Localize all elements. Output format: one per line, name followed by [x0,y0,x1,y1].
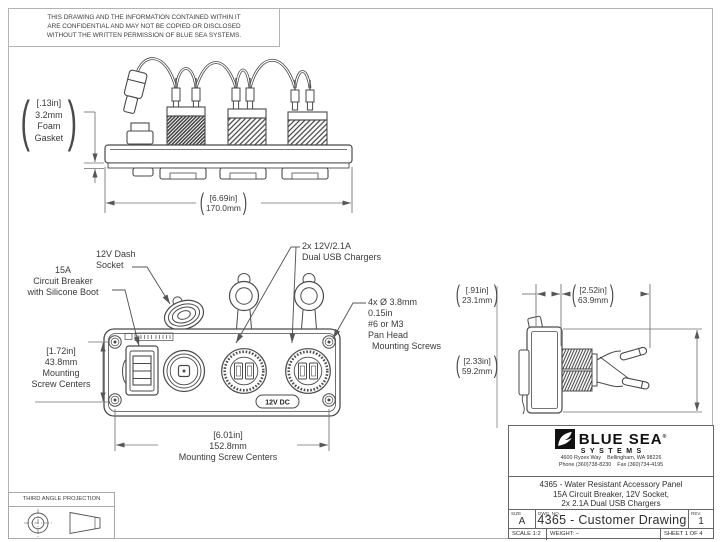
dim-screw-centers-horizontal: [6.01in] 152.8mm Mounting Screw Centers [158,430,298,463]
screw-bottom-left [109,394,121,406]
drawing-description: 4365 - Water Resistant Accessory Panel 1… [509,476,713,509]
size-value: A [509,516,535,527]
projection-cone-icon [67,511,107,535]
usb-cap-left [230,274,259,330]
side-view [519,316,650,414]
drawing-sheet: THIS DRAWING AND THE INFORMATION CONTAIN… [0,0,720,542]
callout-foam-gasket: ( [.13in] 3.2mm Foam Gasket ) [16,93,82,149]
panel-flange-profile [527,327,562,413]
threaded-body [562,349,597,391]
brand-subname: SYSTEMS [509,448,713,455]
weight-cell: WEIGHT: – [547,529,661,540]
usb-charger-right [286,349,331,394]
dash-socket [164,351,205,392]
component-bodies [167,107,327,145]
plug-connector [120,70,153,144]
blue-sea-logo [555,429,575,449]
title-block: BLUE SEA® SYSTEMS 4600 Ryzex Way Belling… [508,425,714,539]
projection-label: THIRD ANGLE PROJECTION [9,493,114,507]
usb-charger-left [222,349,267,394]
sheet-cell: SHEET 1 OF 4 [661,529,713,540]
revision-cell: REV. 1 [689,510,713,528]
screw-bottom-right [323,394,335,406]
drawing-number-value: 4365 - Customer Drawing [536,513,688,527]
wire-loops [136,59,310,88]
callout-circuit-breaker: 15A Circuit Breaker with Silicone Boot [8,265,118,298]
top-view [105,59,352,179]
scale-cell: SCALE 1:2 [509,529,547,540]
dim-screw-centers-vertical: [1.72in] 43.8mm Mounting Screw Centers [22,346,100,390]
projection-circle-icon [23,509,53,537]
callout-mounting-screws: 4x Ø 3.8mm 0.15in #6 or M3 Pan Head Moun… [368,297,468,352]
dim-side-depth: ( [.91in] 23.1mm ) [454,283,500,307]
drawing-number-cell: DWG. NO. 4365 - Customer Drawing [536,510,689,528]
brand-phone-fax: Phone (360)738-8230 Fax (360)734-4195 [509,462,713,469]
size-cell: SIZE A [509,510,536,528]
voltage-badge: 12V DC [256,395,299,408]
brand-name: BLUE SEA® [579,431,668,448]
mounting-plate [105,145,352,179]
dim-side-overall: ( [2.52in] 63.9mm ) [570,283,616,307]
front-view: 12V DC [104,274,340,417]
title-block-brand: BLUE SEA® SYSTEMS 4600 Ryzex Way Belling… [509,426,713,476]
breaker-profile [519,350,529,395]
usb-cap-right [295,274,324,330]
circuit-breaker [123,346,159,395]
projection-box: THIRD ANGLE PROJECTION [8,492,115,539]
brand-address: 4600 Ryzex Way Bellingham, WA 98226 [509,455,713,462]
side-wires [597,347,650,390]
screw-top-left [109,336,121,348]
callout-usb-chargers: 2x 12V/2.1A Dual USB Chargers [302,241,412,263]
voltage-badge-text: 12V DC [265,400,290,407]
registered-mark: ® [663,434,668,440]
foam-gasket-layer [108,163,349,168]
dim-side-height: ( [2.33in] 59.2mm ) [454,354,500,378]
dim-overall-width: ( [6.69in] 170.0mm ) [198,191,249,215]
revision-value: 1 [689,516,713,527]
